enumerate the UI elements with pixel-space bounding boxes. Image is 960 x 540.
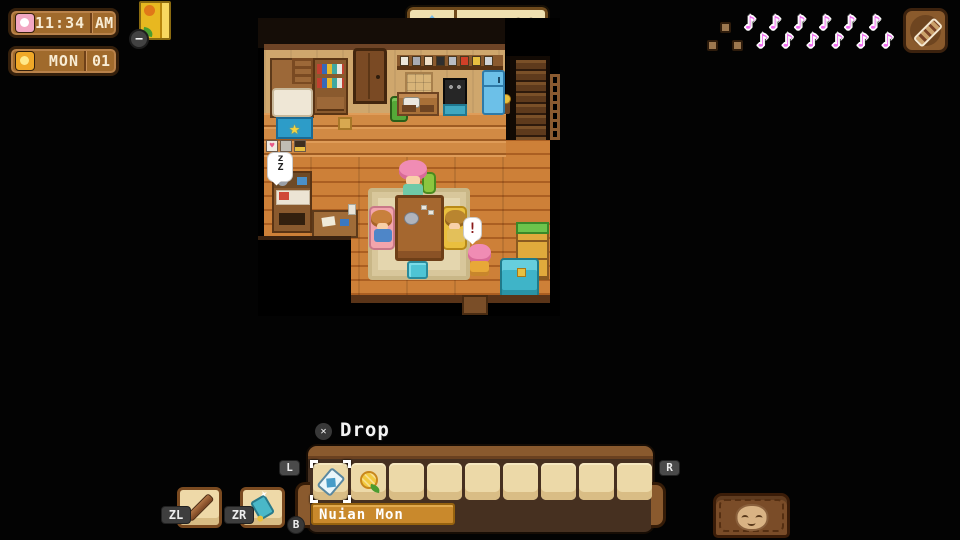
kitchen-window (405, 72, 433, 94)
sleep-bubble: zZ (268, 153, 292, 181)
kettle-icon (436, 56, 445, 66)
r-button-hint[interactable]: R (659, 460, 680, 476)
jar-icon (484, 56, 493, 66)
fruit-icon (360, 471, 378, 489)
jar-icon (412, 56, 421, 66)
kitchen-shelf (397, 55, 503, 70)
teal-chest (500, 258, 539, 298)
canister-icon (460, 56, 469, 66)
music-note-icon (870, 12, 881, 34)
note-slot-empty (707, 40, 718, 51)
npc-left-body (374, 229, 392, 242)
bottle (348, 204, 356, 215)
music-note-icon (782, 30, 793, 52)
time-meridiem: AM (92, 14, 116, 32)
bunk-bed-ladder (292, 58, 314, 84)
teacup (428, 210, 434, 215)
x-button-icon[interactable]: ✕ (315, 423, 332, 440)
l-button-hint[interactable]: L (279, 460, 300, 476)
cat-plaque-icon (280, 140, 292, 152)
hotbar-slot-7[interactable] (541, 463, 576, 500)
shelf-drawers (317, 97, 344, 111)
note-slot-empty (732, 40, 743, 51)
jar-icon (424, 56, 433, 66)
cabinet-opening (279, 213, 305, 225)
wall-ladder (550, 74, 560, 140)
alert-bubble: ! (464, 218, 481, 240)
back-door (353, 48, 387, 104)
zr-button-hint[interactable]: ZR (224, 506, 254, 524)
hotbar-slot-9[interactable] (617, 463, 652, 500)
bed-mattress (272, 88, 313, 117)
instrument-button[interactable] (903, 8, 948, 53)
selection-bracket (343, 495, 351, 503)
pouch-eye (755, 515, 762, 521)
date-value: 01 (86, 52, 116, 70)
heart-icon (266, 140, 278, 152)
teapot (404, 212, 419, 225)
clock-date-box: MON 01 (8, 46, 119, 76)
minus-badge: − (129, 29, 149, 49)
music-note-icon (795, 12, 806, 34)
sink-counter (397, 92, 439, 116)
melody-meter (707, 8, 907, 60)
zl-button-hint[interactable]: ZL (161, 506, 191, 524)
hotbar-slot-5[interactable] (465, 463, 500, 500)
pouch-mouth (748, 520, 756, 526)
staircase (506, 56, 550, 140)
jar-icon (400, 56, 409, 66)
music-note-icon (757, 30, 768, 52)
music-note-icon (745, 12, 756, 34)
item-tooltip: Nuian Mon (311, 503, 455, 525)
music-note-icon (857, 30, 868, 52)
clock-time-box: 11:34 AM (8, 8, 119, 38)
music-note-icon (832, 30, 843, 52)
floor-trim (351, 295, 550, 303)
star-blanket (276, 117, 313, 139)
selection-bracket (310, 495, 318, 503)
jar-icon (472, 56, 481, 66)
game-scene: zZ ! (258, 18, 560, 316)
blue-tool (340, 219, 349, 226)
medal-plaque-icon (294, 140, 306, 152)
hotbar-lip (308, 446, 653, 459)
day-icon (15, 51, 35, 71)
music-note-icon (820, 12, 831, 34)
card-icon (316, 467, 345, 497)
jar-icon (448, 56, 457, 66)
player-body (470, 261, 489, 276)
decor-shelf (266, 140, 312, 153)
bookshelf (313, 58, 348, 115)
music-note-icon (770, 12, 781, 34)
dining-table (395, 195, 444, 261)
stove-oven (443, 78, 467, 116)
floor-cushion (407, 261, 428, 279)
hotbar: Nuian Mon (308, 446, 653, 532)
blue-box (297, 177, 307, 185)
coin-pouch[interactable] (713, 493, 790, 538)
book-row (317, 78, 344, 88)
selection-bracket (310, 460, 318, 468)
stairwell-opening (505, 18, 560, 60)
npc-right-body (447, 229, 465, 242)
journal-sun (144, 5, 155, 16)
selection-bracket (343, 460, 351, 468)
hotbar-slot-3[interactable] (389, 463, 424, 500)
unexplored-area (258, 236, 351, 316)
hotbar-slot-4[interactable] (427, 463, 462, 500)
sleep-bubble-text: zZ (268, 153, 292, 171)
entry-step (462, 295, 488, 315)
hotbar-slots (313, 463, 655, 500)
star-icon (289, 118, 300, 139)
paper-sheet (321, 216, 335, 227)
b-button-hint[interactable]: B (287, 516, 305, 534)
time-value: 11:34 (35, 14, 90, 32)
fridge (482, 70, 505, 115)
hotbar-slot-8[interactable] (579, 463, 614, 500)
hotbar-slot-6[interactable] (503, 463, 538, 500)
music-note-icon (845, 12, 856, 34)
journal-fold (160, 3, 169, 38)
storage-box (338, 117, 352, 130)
note-slot-empty (720, 22, 731, 33)
counter-drawer (420, 105, 434, 112)
music-note-icon (882, 30, 893, 52)
pouch-face-icon (735, 504, 768, 531)
hotbar-slot-1[interactable] (313, 463, 348, 500)
counter-drawer (402, 105, 416, 112)
book-row (317, 64, 344, 74)
music-note-icon (807, 30, 818, 52)
hotbar-slot-2[interactable] (351, 463, 386, 500)
time-icon (15, 13, 35, 33)
red-towel (279, 192, 289, 200)
day-value: MON (35, 52, 84, 70)
teacup (421, 205, 427, 210)
drop-action-label: Drop (340, 419, 390, 441)
